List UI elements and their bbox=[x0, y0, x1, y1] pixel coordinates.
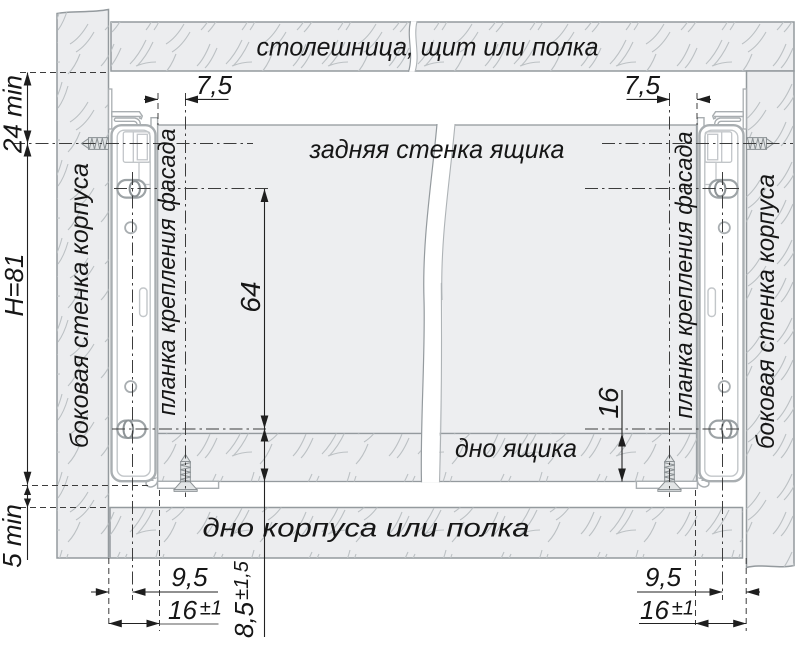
svg-text:9,5: 9,5 bbox=[645, 562, 682, 592]
svg-text:столешница, щит или полка: столешница, щит или полка bbox=[257, 32, 599, 62]
svg-text:боковая стенка корпуса: боковая стенка корпуса bbox=[752, 174, 780, 449]
svg-text:64: 64 bbox=[235, 281, 266, 312]
svg-text:16: 16 bbox=[593, 387, 624, 419]
svg-text:дно корпуса или полка: дно корпуса или полка bbox=[203, 513, 530, 543]
svg-text:9,5: 9,5 bbox=[171, 562, 208, 592]
svg-text:5 min: 5 min bbox=[0, 504, 27, 568]
svg-text:7,5: 7,5 bbox=[624, 70, 661, 100]
svg-text:7,5: 7,5 bbox=[196, 70, 233, 100]
svg-text:дно ящика: дно ящика bbox=[455, 433, 577, 463]
svg-text:боковая стенка корпуса: боковая стенка корпуса bbox=[66, 163, 94, 448]
svg-text:задняя стенка ящика: задняя стенка ящика bbox=[309, 134, 565, 164]
svg-text:H=81: H=81 bbox=[0, 254, 29, 317]
svg-text:планка крепления фасада: планка крепления фасада bbox=[154, 129, 181, 416]
svg-text:планка крепления фасада: планка крепления фасада bbox=[671, 132, 698, 419]
svg-text:24 min: 24 min bbox=[0, 75, 28, 154]
